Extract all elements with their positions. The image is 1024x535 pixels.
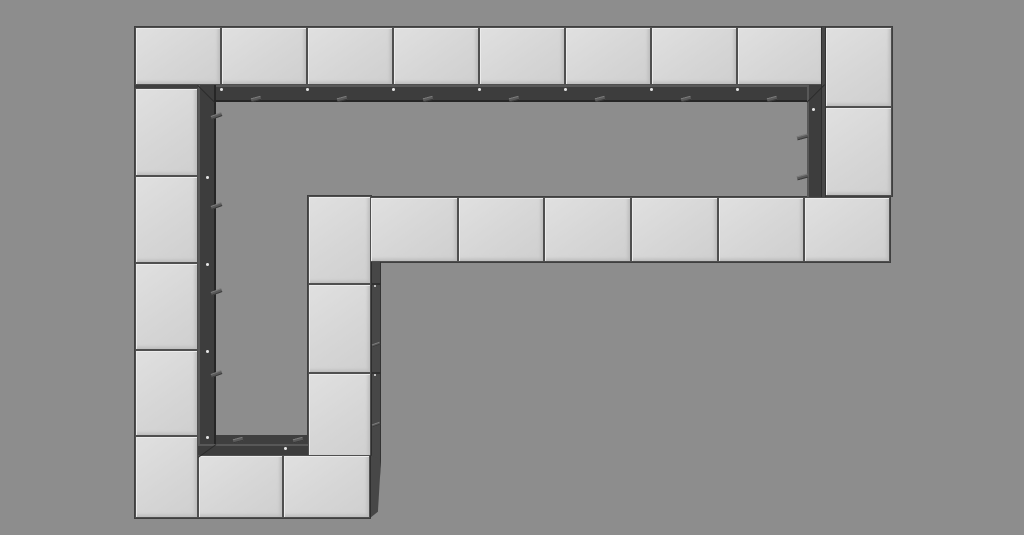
cube-mid-row-3[interactable] [544,197,631,262]
screw-dot [736,88,739,91]
screw-dot [220,88,223,91]
cube-mid-col-1[interactable] [308,196,371,284]
screw-dot [206,176,209,179]
cube-left-5[interactable] [135,436,198,518]
cube-mid-row-2[interactable] [458,197,544,262]
cube-mid-row-1[interactable] [370,197,458,262]
screw-dot [478,88,481,91]
cube-left-1[interactable] [135,88,198,176]
cube-right-1[interactable] [825,27,892,107]
screw-dot [392,88,395,91]
screw-dot [374,285,376,287]
screw-dot [206,350,209,353]
screw-dot [206,263,209,266]
cube-top-3[interactable] [307,27,393,85]
screw-dot [306,88,309,91]
cube-top-7[interactable] [651,27,737,85]
screw-dot [284,447,287,450]
cube-top-5[interactable] [479,27,565,85]
side-right-col-left [821,27,826,197]
screw-dot [564,88,567,91]
screw-dot [374,374,376,376]
side-mid-col-right [371,262,381,460]
cube-mid-col-2[interactable] [308,284,371,373]
3d-viewport[interactable] [0,0,1024,535]
cube-top-6[interactable] [565,27,651,85]
cube-top-2[interactable] [221,27,307,85]
cube-bottom-2[interactable] [283,455,370,518]
cube-top-1[interactable] [135,27,221,85]
cube-top-4[interactable] [393,27,479,85]
cube-bottom-1[interactable] [198,455,283,518]
cube-mid-col-3[interactable] [308,373,371,460]
cube-left-4[interactable] [135,350,198,436]
cube-right-2[interactable] [825,107,892,196]
seam-mid-col-a [371,283,381,285]
screw-dot [206,436,209,439]
cube-left-3[interactable] [135,263,198,350]
cube-mid-row-5[interactable] [718,197,804,262]
screw-dot [650,88,653,91]
seam-mid-col-b [371,372,381,374]
cube-mid-row-6[interactable] [804,197,890,262]
cube-top-8[interactable] [737,27,825,85]
screw-dot [812,108,815,111]
side-bottom-row-right [370,455,381,518]
cube-left-2[interactable] [135,176,198,263]
cube-mid-row-4[interactable] [631,197,718,262]
